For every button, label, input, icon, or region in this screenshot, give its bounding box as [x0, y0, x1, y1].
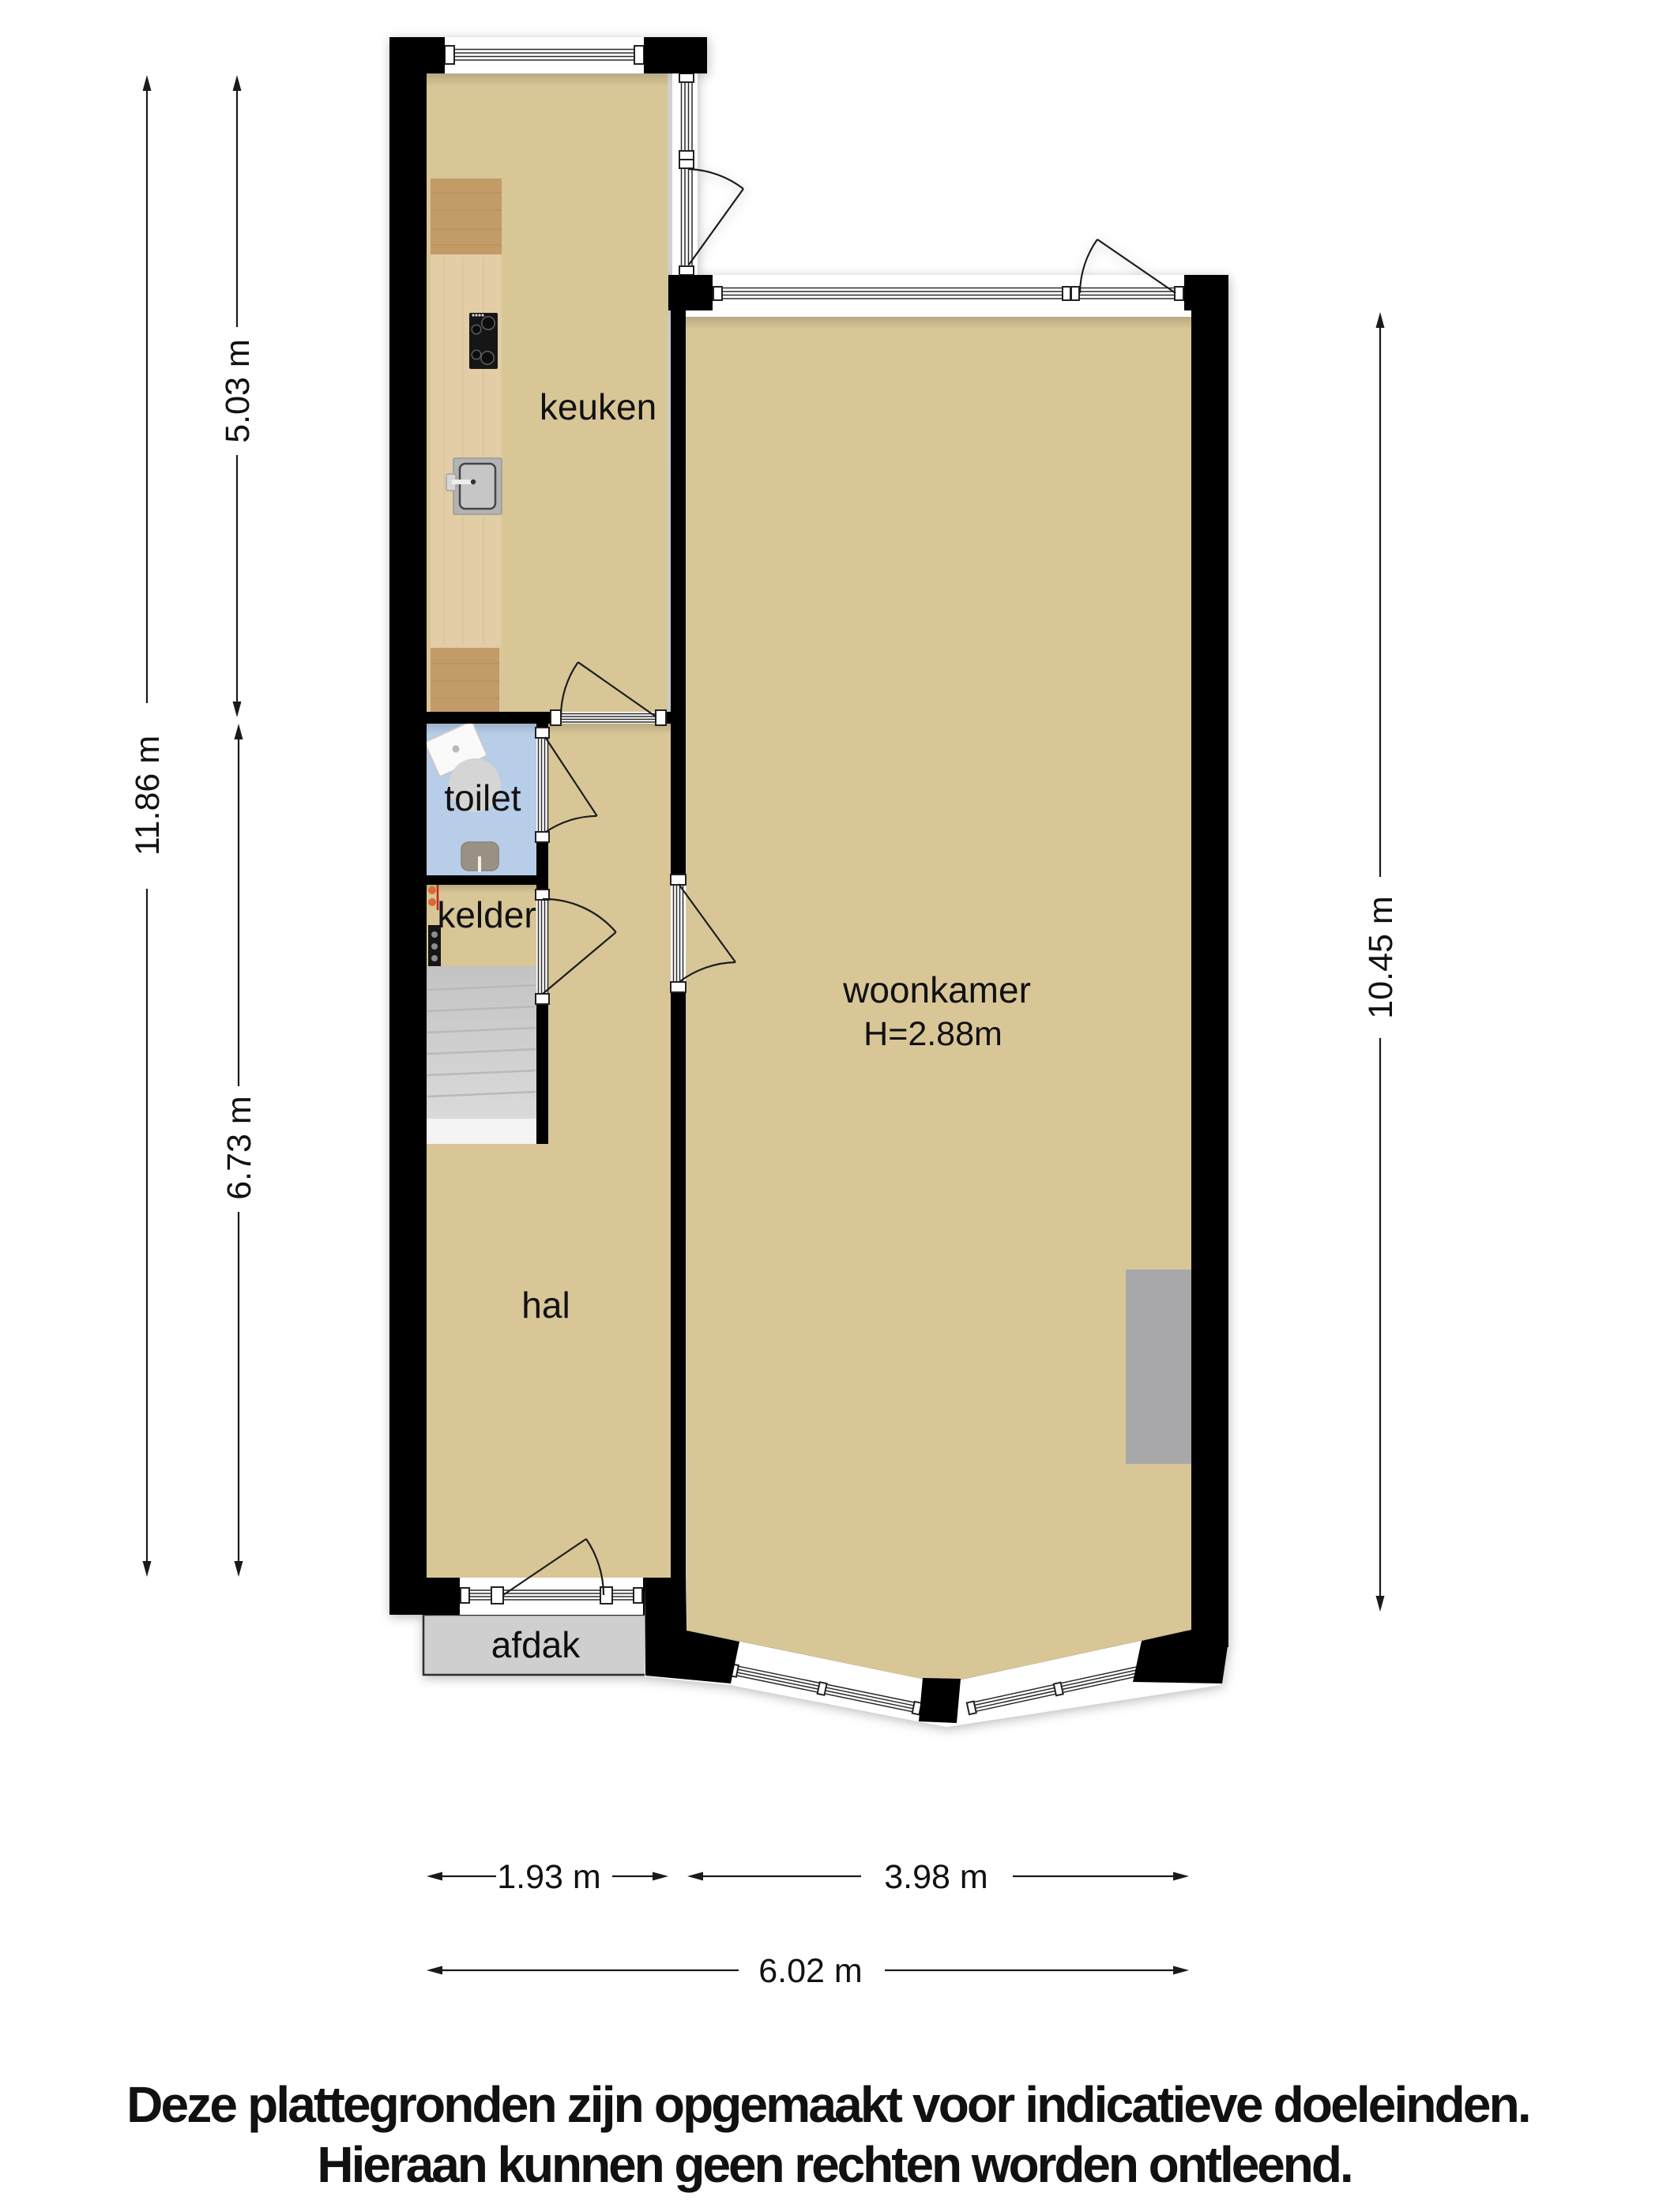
svg-text:keuken: keuken: [540, 386, 656, 427]
svg-text:afdak: afdak: [491, 1624, 581, 1665]
svg-text:toilet: toilet: [444, 777, 521, 818]
svg-text:1.93 m: 1.93 m: [497, 1858, 600, 1896]
svg-text:Hieraan kunnen geen rechten wo: Hieraan kunnen geen rechten worden ontle…: [317, 2136, 1351, 2193]
svg-text:11.86 m: 11.86 m: [129, 735, 167, 856]
svg-text:kelder: kelder: [437, 894, 536, 935]
svg-text:Deze plattegronden zijn opgema: Deze plattegronden zijn opgemaakt voor i…: [126, 2076, 1529, 2133]
svg-text:6.73 m: 6.73 m: [220, 1096, 258, 1199]
svg-text:5.03 m: 5.03 m: [219, 339, 257, 442]
svg-text:3.98 m: 3.98 m: [884, 1858, 987, 1896]
svg-text:H=2.88m: H=2.88m: [863, 1015, 1003, 1053]
svg-text:hal: hal: [521, 1285, 570, 1326]
svg-text:woonkamer: woonkamer: [842, 969, 1031, 1010]
svg-text:6.02 m: 6.02 m: [758, 1952, 862, 1990]
svg-text:10.45 m: 10.45 m: [1362, 896, 1400, 1018]
